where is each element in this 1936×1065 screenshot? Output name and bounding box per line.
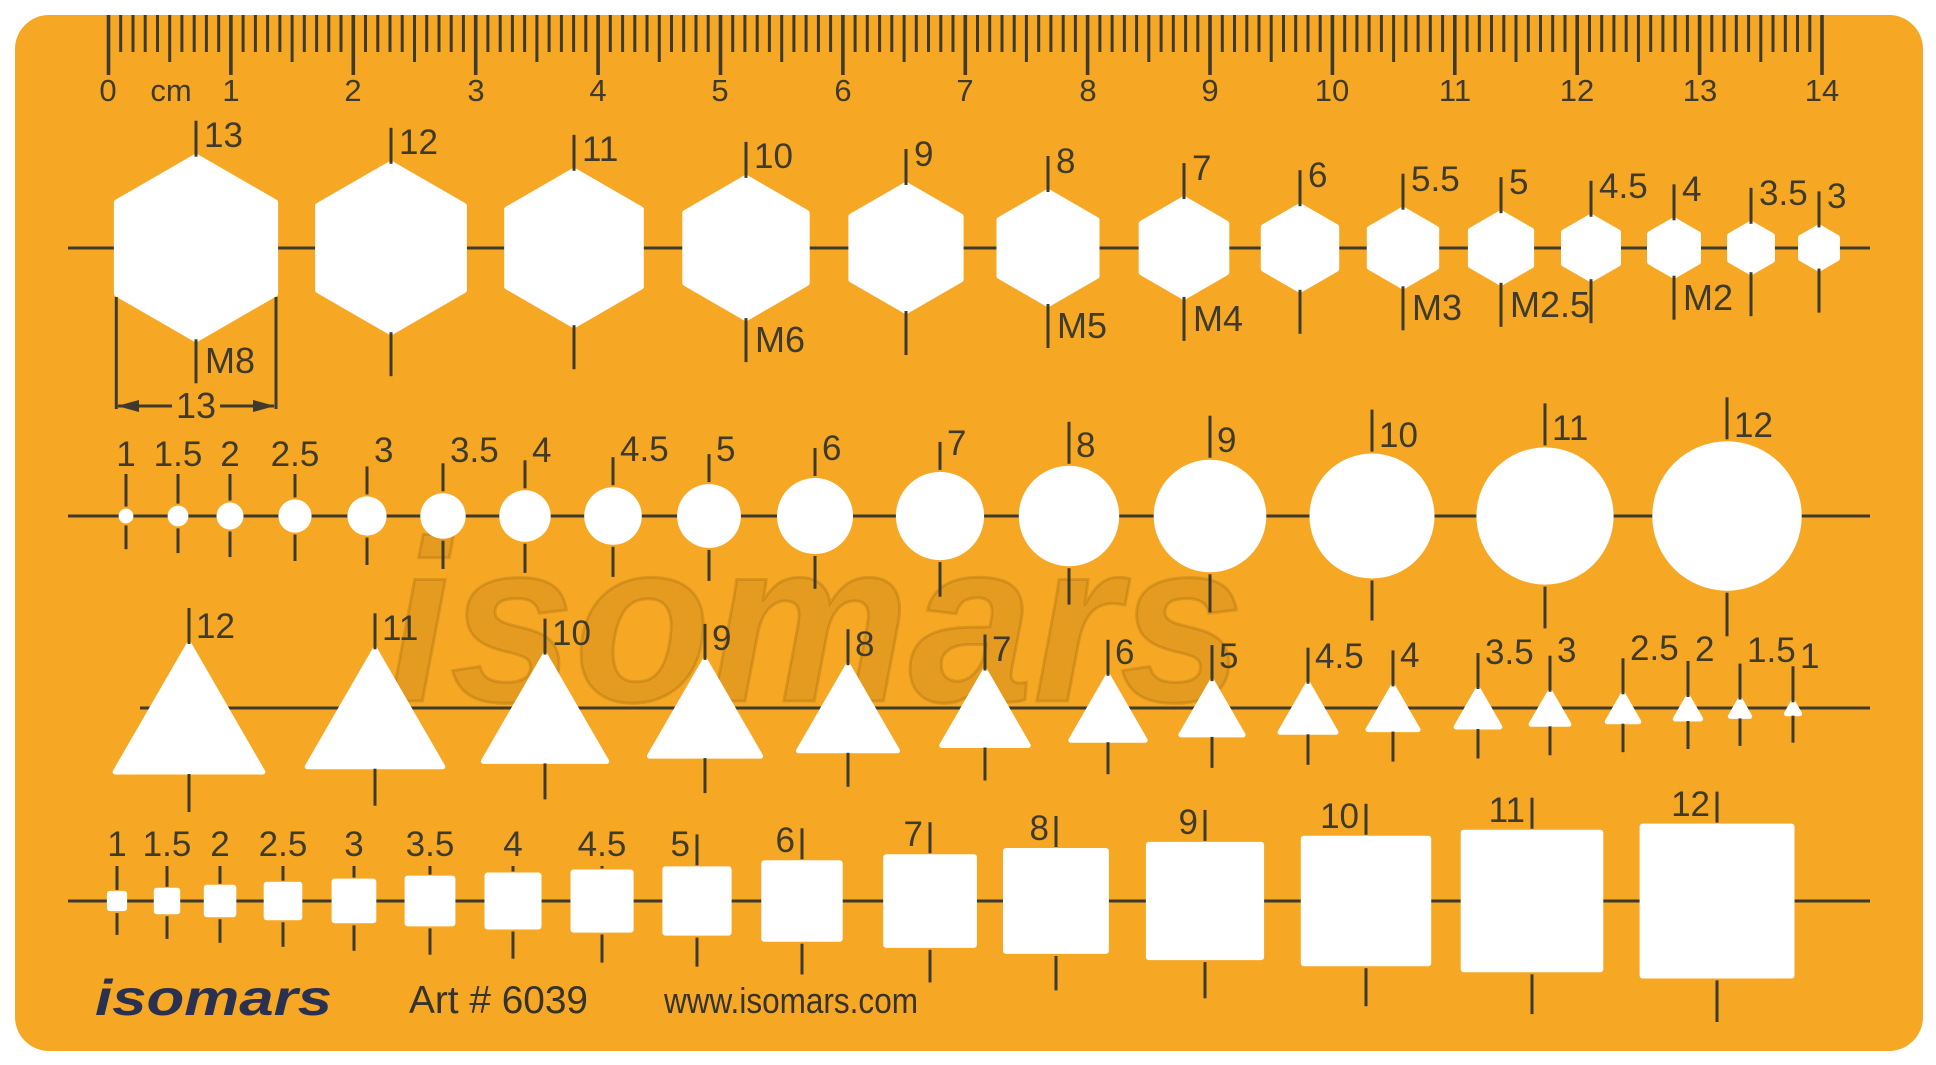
svg-text:3: 3 <box>1827 177 1846 216</box>
svg-text:6: 6 <box>822 429 841 468</box>
svg-text:M2: M2 <box>1683 277 1733 318</box>
svg-text:6: 6 <box>1115 633 1134 672</box>
svg-text:14: 14 <box>1805 73 1839 108</box>
svg-text:8: 8 <box>855 625 874 664</box>
svg-text:0: 0 <box>99 73 116 108</box>
svg-text:11: 11 <box>582 130 618 169</box>
svg-text:2: 2 <box>1695 630 1714 669</box>
svg-text:7: 7 <box>904 815 923 854</box>
svg-text:1: 1 <box>116 435 135 474</box>
svg-text:3.5: 3.5 <box>1485 633 1534 672</box>
svg-text:4: 4 <box>1400 636 1419 675</box>
svg-text:11: 11 <box>382 609 418 648</box>
svg-text:1.5: 1.5 <box>1747 631 1796 670</box>
svg-text:5: 5 <box>671 825 690 864</box>
svg-text:11: 11 <box>1552 409 1588 448</box>
svg-text:10: 10 <box>1320 797 1359 836</box>
svg-text:4: 4 <box>503 825 522 864</box>
svg-text:11: 11 <box>1489 791 1525 830</box>
svg-text:6: 6 <box>834 73 851 108</box>
svg-text:4.5: 4.5 <box>1599 167 1648 206</box>
svg-text:13: 13 <box>176 385 216 426</box>
svg-text:12: 12 <box>1560 73 1594 108</box>
svg-text:M3: M3 <box>1412 287 1462 328</box>
svg-text:M2.5: M2.5 <box>1510 284 1590 325</box>
svg-text:13: 13 <box>204 116 243 155</box>
svg-text:9: 9 <box>1179 803 1198 842</box>
svg-text:7: 7 <box>1192 149 1211 188</box>
svg-text:9: 9 <box>1201 73 1218 108</box>
svg-text:12: 12 <box>196 607 235 646</box>
svg-text:M6: M6 <box>755 319 805 360</box>
svg-text:9: 9 <box>712 619 731 658</box>
svg-text:4: 4 <box>532 431 551 470</box>
svg-text:3.5: 3.5 <box>450 431 499 470</box>
svg-text:cm: cm <box>150 73 191 108</box>
svg-text:12: 12 <box>399 123 438 162</box>
svg-text:1.5: 1.5 <box>154 435 203 474</box>
svg-text:7: 7 <box>992 630 1011 669</box>
svg-text:2: 2 <box>344 73 361 108</box>
svg-text:2: 2 <box>210 825 229 864</box>
svg-text:9: 9 <box>1217 421 1236 460</box>
svg-text:2.5: 2.5 <box>1630 629 1679 668</box>
svg-text:3: 3 <box>467 73 484 108</box>
svg-text:5: 5 <box>716 430 735 469</box>
svg-text:10: 10 <box>552 614 591 653</box>
svg-text:5: 5 <box>711 73 728 108</box>
svg-text:2.5: 2.5 <box>259 825 308 864</box>
svg-text:5: 5 <box>1509 163 1528 202</box>
svg-text:6: 6 <box>776 821 795 860</box>
svg-text:1: 1 <box>222 73 239 108</box>
svg-text:1.5: 1.5 <box>143 825 192 864</box>
svg-text:4: 4 <box>1682 170 1701 209</box>
svg-text:11: 11 <box>1439 73 1471 108</box>
svg-text:10: 10 <box>1315 73 1349 108</box>
svg-text:3.5: 3.5 <box>1759 174 1808 213</box>
svg-text:3: 3 <box>1557 631 1576 670</box>
svg-text:8: 8 <box>1079 73 1096 108</box>
svg-text:13: 13 <box>1683 73 1717 108</box>
svg-text:12: 12 <box>1734 406 1773 445</box>
svg-text:Art # 6039: Art # 6039 <box>409 979 588 1022</box>
svg-text:3.5: 3.5 <box>406 825 455 864</box>
svg-text:4.5: 4.5 <box>620 430 669 469</box>
svg-text:10: 10 <box>754 137 793 176</box>
svg-text:3: 3 <box>344 825 363 864</box>
svg-text:8: 8 <box>1056 142 1075 181</box>
svg-text:www.isomars.com: www.isomars.com <box>663 980 918 1021</box>
svg-text:9: 9 <box>914 135 933 174</box>
svg-text:6: 6 <box>1308 156 1327 195</box>
svg-text:isomars: isomars <box>95 970 332 1026</box>
svg-text:8: 8 <box>1076 426 1095 465</box>
svg-text:1: 1 <box>1800 637 1819 676</box>
svg-text:M4: M4 <box>1193 298 1243 339</box>
svg-text:10: 10 <box>1379 416 1418 455</box>
svg-text:5: 5 <box>1219 637 1238 676</box>
svg-text:7: 7 <box>956 73 973 108</box>
svg-text:5.5: 5.5 <box>1411 160 1460 199</box>
svg-text:7: 7 <box>947 424 966 463</box>
svg-text:M8: M8 <box>205 340 255 381</box>
svg-text:4.5: 4.5 <box>1315 637 1364 676</box>
svg-text:4.5: 4.5 <box>578 825 627 864</box>
svg-text:3: 3 <box>374 431 393 470</box>
svg-text:M5: M5 <box>1057 305 1107 346</box>
svg-text:1: 1 <box>107 825 126 864</box>
svg-text:4: 4 <box>589 73 606 108</box>
svg-text:8: 8 <box>1030 809 1049 848</box>
svg-text:2.5: 2.5 <box>271 435 320 474</box>
svg-text:12: 12 <box>1671 785 1710 824</box>
svg-text:2: 2 <box>220 435 239 474</box>
